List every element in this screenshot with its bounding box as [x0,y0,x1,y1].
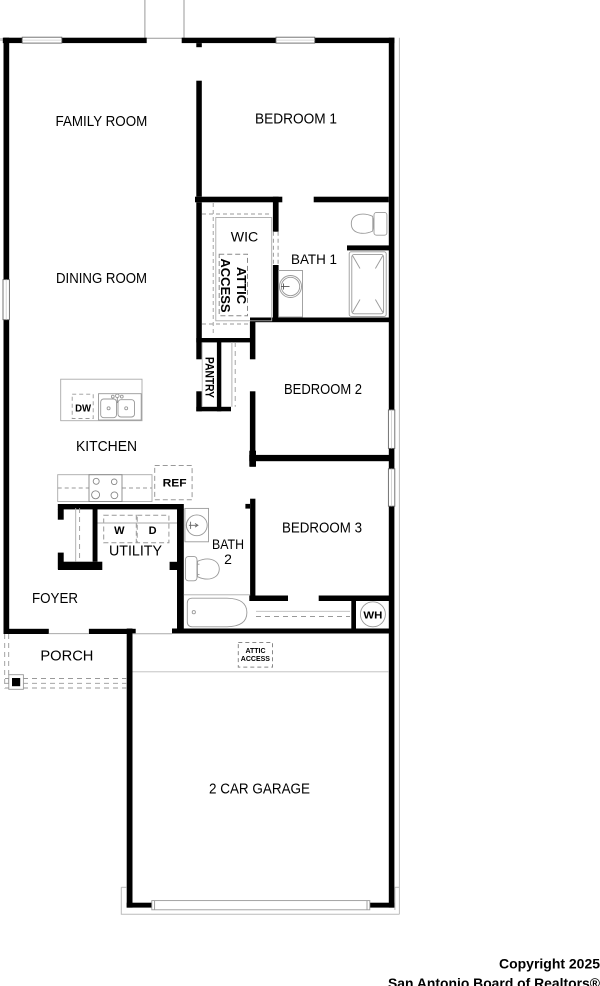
svg-text:BATH: BATH [212,536,244,552]
svg-text:KITCHEN: KITCHEN [76,438,137,455]
svg-text:BEDROOM 1: BEDROOM 1 [255,111,337,128]
svg-text:UTILITY: UTILITY [109,543,162,560]
svg-text:BEDROOM 2: BEDROOM 2 [284,381,362,398]
svg-text:2 CAR GARAGE: 2 CAR GARAGE [209,781,310,798]
svg-text:PANTRY: PANTRY [202,357,216,398]
svg-text:BEDROOM 3: BEDROOM 3 [282,520,362,537]
svg-text:FAMILY ROOM: FAMILY ROOM [56,113,148,130]
svg-text:ATTIC: ATTIC [245,648,265,655]
svg-text:FOYER: FOYER [32,590,78,607]
svg-text:D: D [149,525,157,537]
svg-text:WIC: WIC [231,229,259,245]
svg-text:Copyright 2025: Copyright 2025 [499,957,600,972]
svg-text:PORCH: PORCH [40,648,93,665]
svg-text:WH: WH [363,610,382,622]
svg-text:DW: DW [75,403,91,415]
svg-text:W: W [114,525,125,537]
svg-text:ACCESS: ACCESS [218,258,233,313]
svg-text:San Antonio Board of Realtors®: San Antonio Board of Realtors® [388,976,600,986]
svg-text:BATH 1: BATH 1 [291,251,337,267]
svg-text:DINING ROOM: DINING ROOM [56,270,147,287]
svg-text:REF: REF [163,477,187,489]
svg-text:ATTIC: ATTIC [234,267,249,305]
svg-text:2: 2 [224,551,232,567]
svg-text:ACCESS: ACCESS [241,656,271,663]
